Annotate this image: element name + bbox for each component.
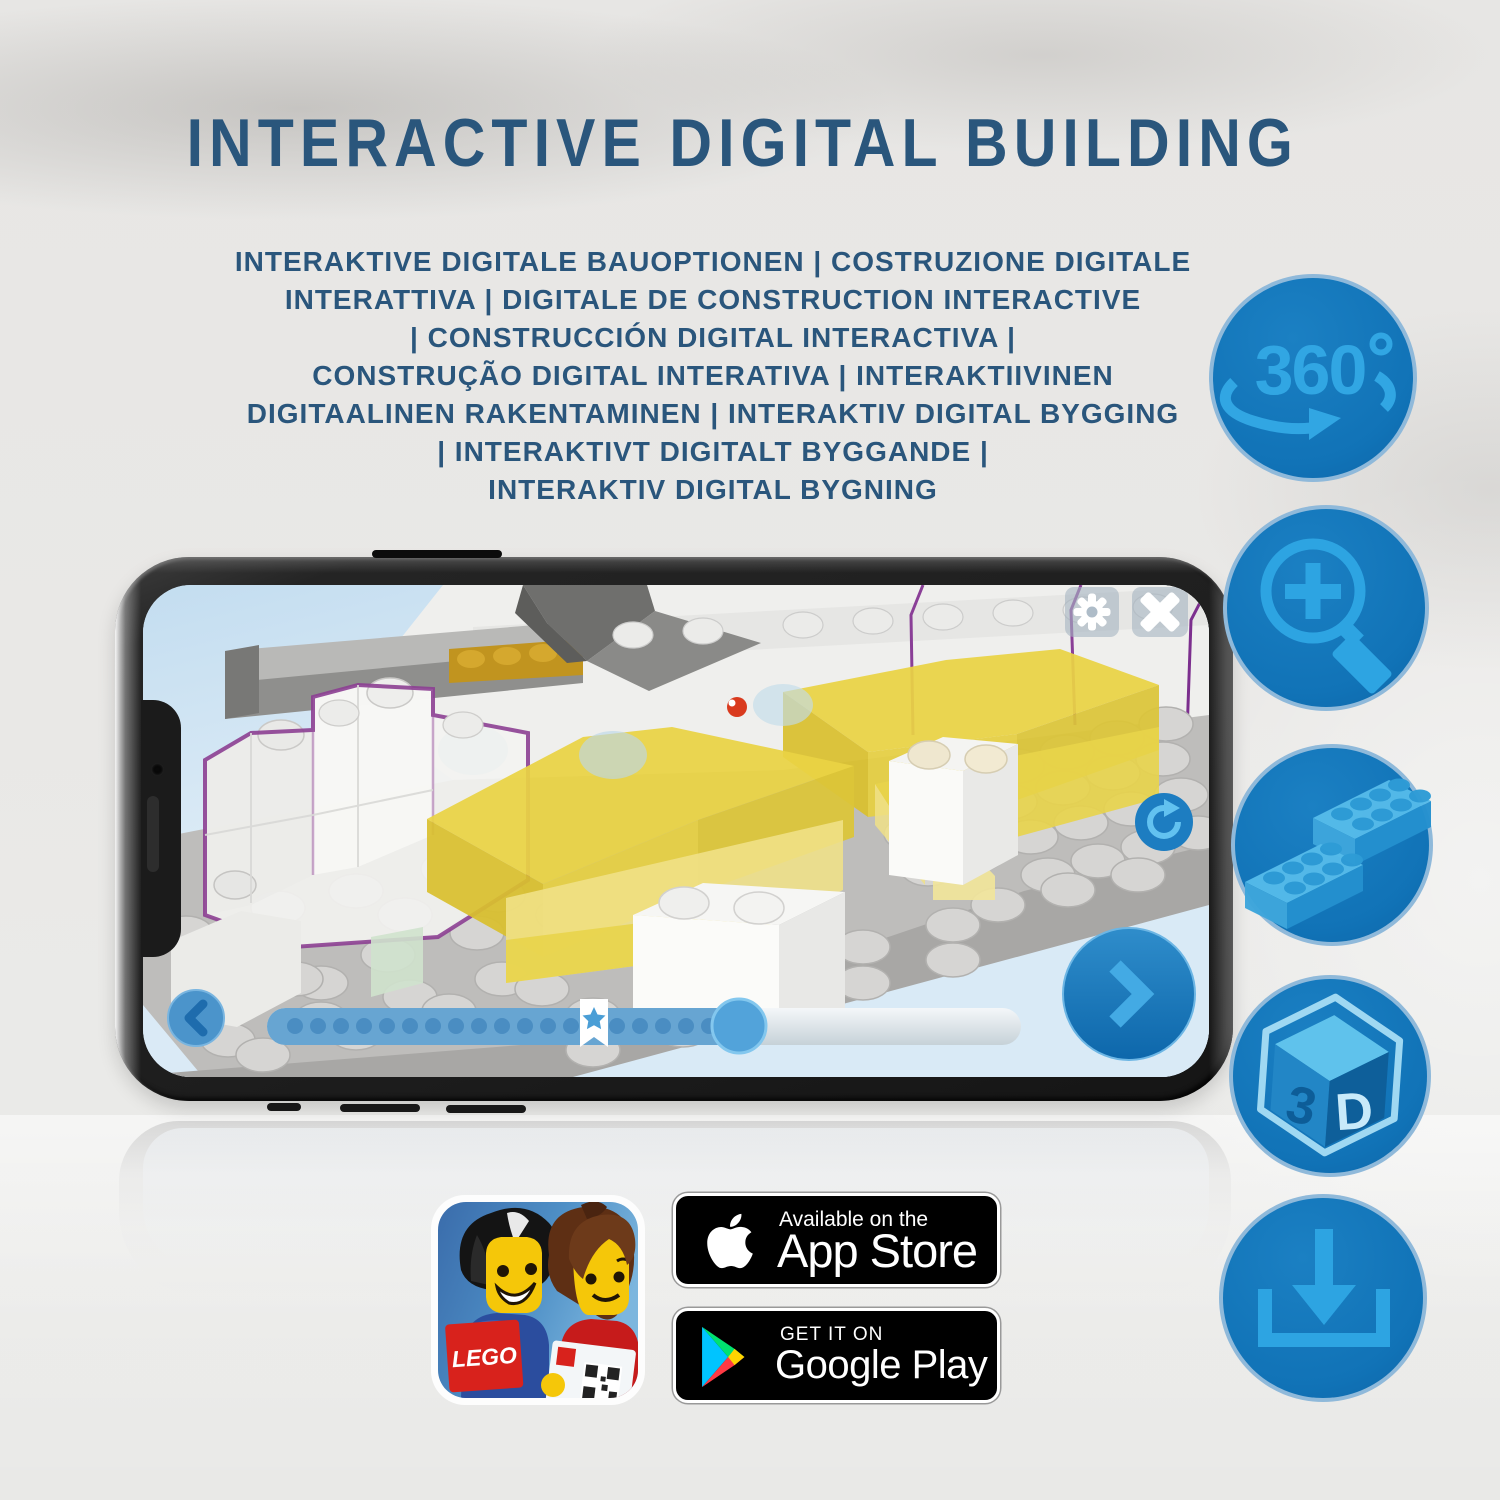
svg-text:D: D xyxy=(1333,1082,1375,1142)
svg-text:LEGO: LEGO xyxy=(451,1342,518,1372)
svg-text:360: 360 xyxy=(1255,331,1366,409)
